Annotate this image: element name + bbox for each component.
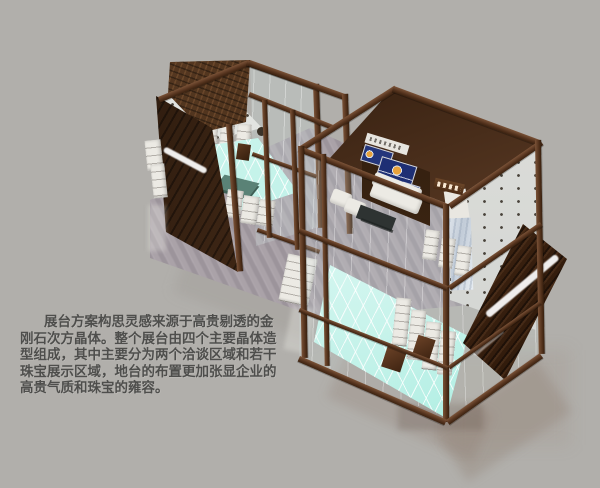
booth-sign-glyphs xyxy=(437,181,462,191)
booth-3d-render xyxy=(0,0,600,488)
caption-line: 珠宝展示区域，地台的布置更加张显企业的 xyxy=(20,364,288,381)
presentation-page: 展台方案构思灵感来源于高贵剔透的金 刚石次方晶体。整个展台由四个主要晶体造 型组… xyxy=(0,0,600,488)
display-reflection xyxy=(148,205,166,251)
caption-line: 刚石次方晶体。整个展台由四个主要晶体造 xyxy=(20,331,288,348)
caption-line: 型组成，其中主要分为两个洽谈区域和若干 xyxy=(20,347,288,364)
frame-edge xyxy=(443,204,449,422)
wooden-stool-box xyxy=(236,143,251,161)
caption-line: 展台方案构思灵感来源于高贵剔透的金 xyxy=(20,314,288,331)
description-text: 展台方案构思灵感来源于高贵剔透的金 刚石次方晶体。整个展台由四个主要晶体造 型组… xyxy=(20,314,288,397)
caption-line: 高贵气质和珠宝的雍容。 xyxy=(20,380,288,397)
